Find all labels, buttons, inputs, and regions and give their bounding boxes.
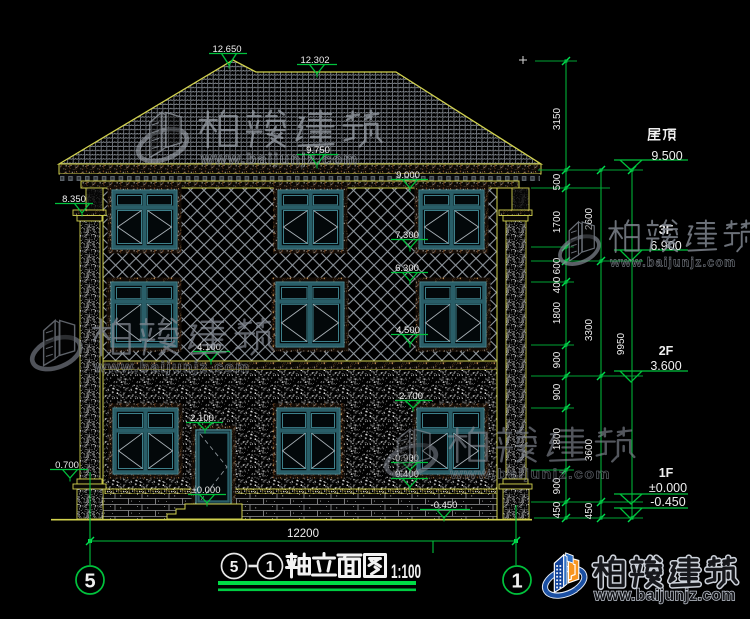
- svg-text:900: 900: [552, 351, 563, 368]
- svg-text:5: 5: [230, 559, 239, 576]
- svg-text:±0.000: ±0.000: [649, 481, 687, 495]
- svg-text:12200: 12200: [287, 528, 319, 540]
- svg-text:450: 450: [552, 501, 563, 518]
- svg-text:500: 500: [552, 173, 563, 190]
- svg-text:1: 1: [266, 559, 275, 576]
- svg-text:2F: 2F: [659, 344, 674, 358]
- svg-text:-0.450: -0.450: [650, 495, 685, 509]
- svg-text:www.baijunjz.com: www.baijunjz.com: [609, 254, 736, 269]
- svg-text:1800: 1800: [552, 301, 563, 324]
- svg-text:3300: 3300: [584, 318, 595, 341]
- svg-text:1:100: 1:100: [391, 562, 421, 583]
- svg-text:400: 400: [552, 276, 563, 293]
- svg-text:www.baijunjz.com: www.baijunjz.com: [449, 466, 611, 482]
- svg-text:www.baijunjz.com: www.baijunjz.com: [593, 587, 736, 604]
- svg-text:1F: 1F: [659, 466, 674, 480]
- svg-text:450: 450: [584, 502, 595, 519]
- svg-text:3150: 3150: [552, 107, 563, 130]
- svg-text:1: 1: [511, 571, 522, 593]
- svg-text:900: 900: [552, 383, 563, 400]
- svg-text:1700: 1700: [552, 210, 563, 233]
- svg-text:5: 5: [84, 571, 95, 593]
- svg-text:www.baijunjz.com: www.baijunjz.com: [93, 359, 250, 376]
- svg-text:9950: 9950: [616, 332, 627, 355]
- svg-text:www.baijunjz.com: www.baijunjz.com: [200, 151, 359, 168]
- svg-text:9.500: 9.500: [651, 149, 682, 163]
- svg-text:3.600: 3.600: [650, 359, 681, 373]
